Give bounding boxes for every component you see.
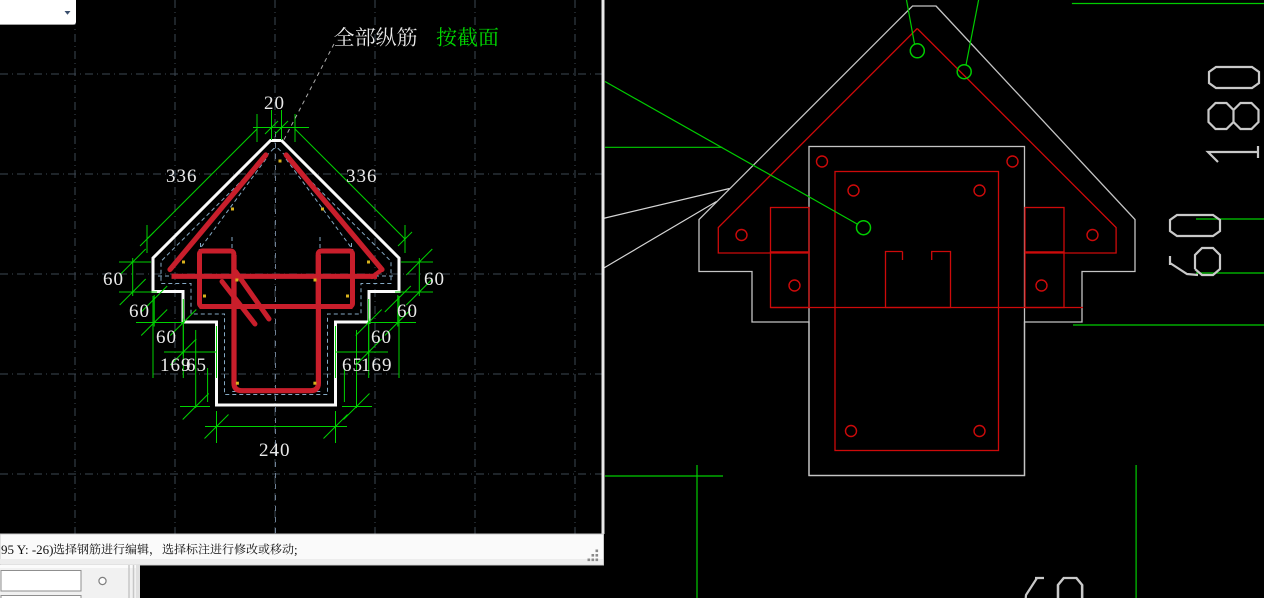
svg-text:65: 65: [342, 355, 363, 376]
svg-text:60: 60: [103, 269, 124, 290]
svg-text:65: 65: [186, 355, 207, 376]
svg-text:;: ;: [294, 542, 298, 557]
svg-text:60: 60: [397, 301, 418, 322]
svg-text:169: 169: [361, 355, 393, 376]
svg-text:60: 60: [371, 327, 392, 348]
svg-text:336: 336: [166, 166, 198, 187]
svg-text:20: 20: [264, 93, 285, 114]
svg-text:240: 240: [259, 440, 291, 461]
svg-text:336: 336: [346, 166, 378, 187]
svg-text:95 Y: -26): 95 Y: -26): [1, 542, 53, 557]
svg-text:60: 60: [156, 327, 177, 348]
svg-text:60: 60: [129, 301, 150, 322]
svg-text:60: 60: [424, 269, 445, 290]
